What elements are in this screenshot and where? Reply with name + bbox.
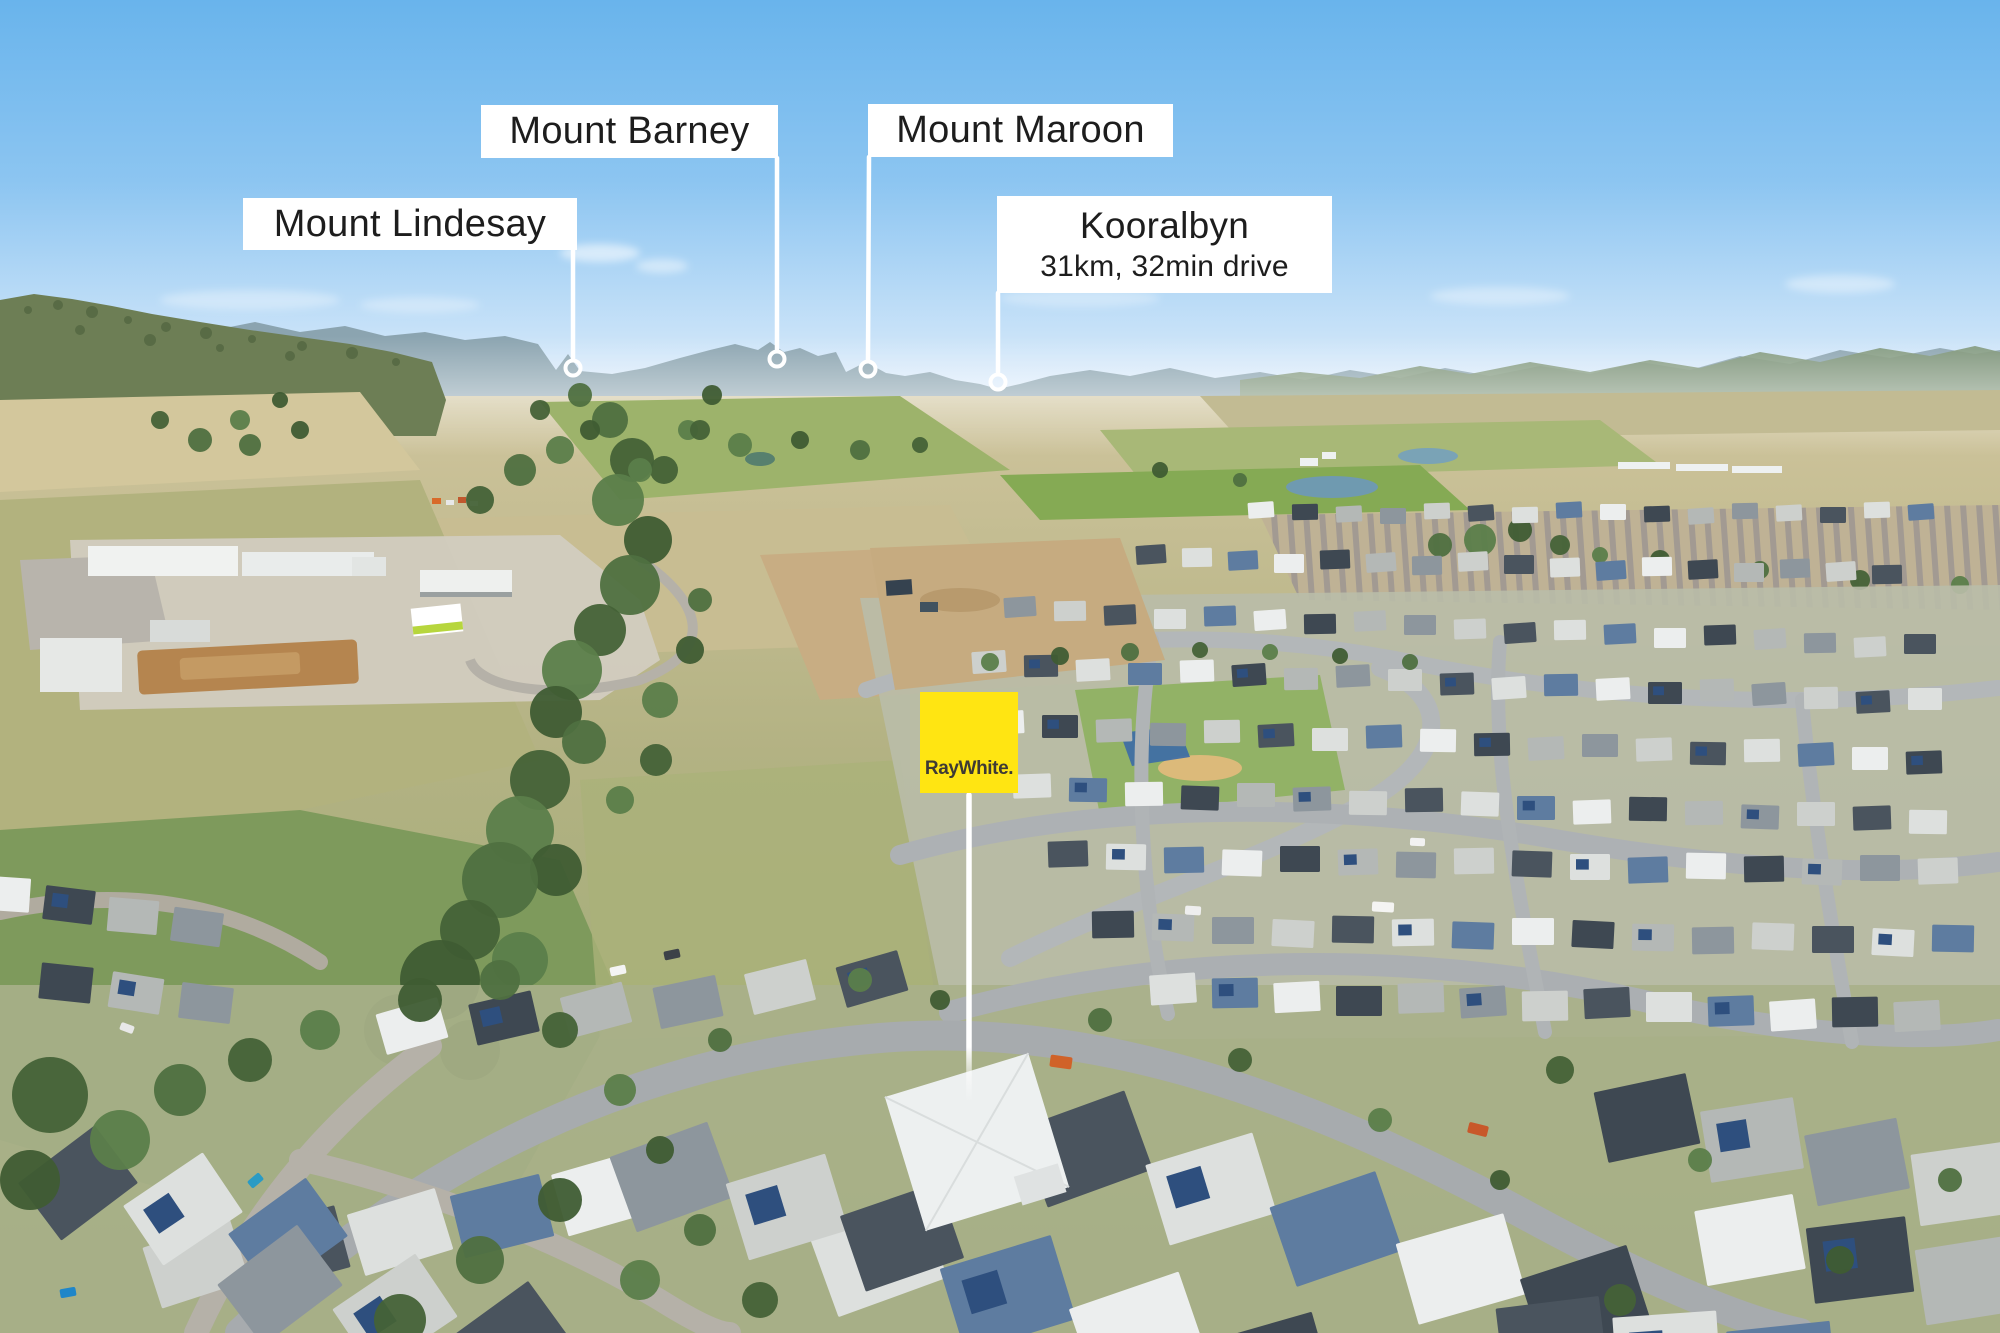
kooralbyn-distance-label: 31km, 32min drive	[1040, 248, 1289, 286]
mount-lindesay-label: Mount Lindesay	[274, 203, 546, 246]
mount-maroon-label: Mount Maroon	[896, 109, 1145, 152]
kooralbyn-label: Kooralbyn	[1080, 204, 1249, 248]
callout-mount-barney: Mount Barney	[481, 105, 778, 158]
callout-mount-lindesay: Mount Lindesay	[243, 198, 577, 250]
callout-mount-maroon: Mount Maroon	[868, 104, 1173, 157]
raywhite-logo-text: RayWhite.	[925, 758, 1013, 780]
callout-kooralbyn: Kooralbyn 31km, 32min drive	[997, 196, 1332, 293]
raywhite-logo-marker: RayWhite.	[920, 692, 1018, 793]
aerial-photo: Mount Barney Mount Maroon Mount Lindesay…	[0, 0, 2000, 1333]
mount-barney-label: Mount Barney	[509, 110, 749, 153]
